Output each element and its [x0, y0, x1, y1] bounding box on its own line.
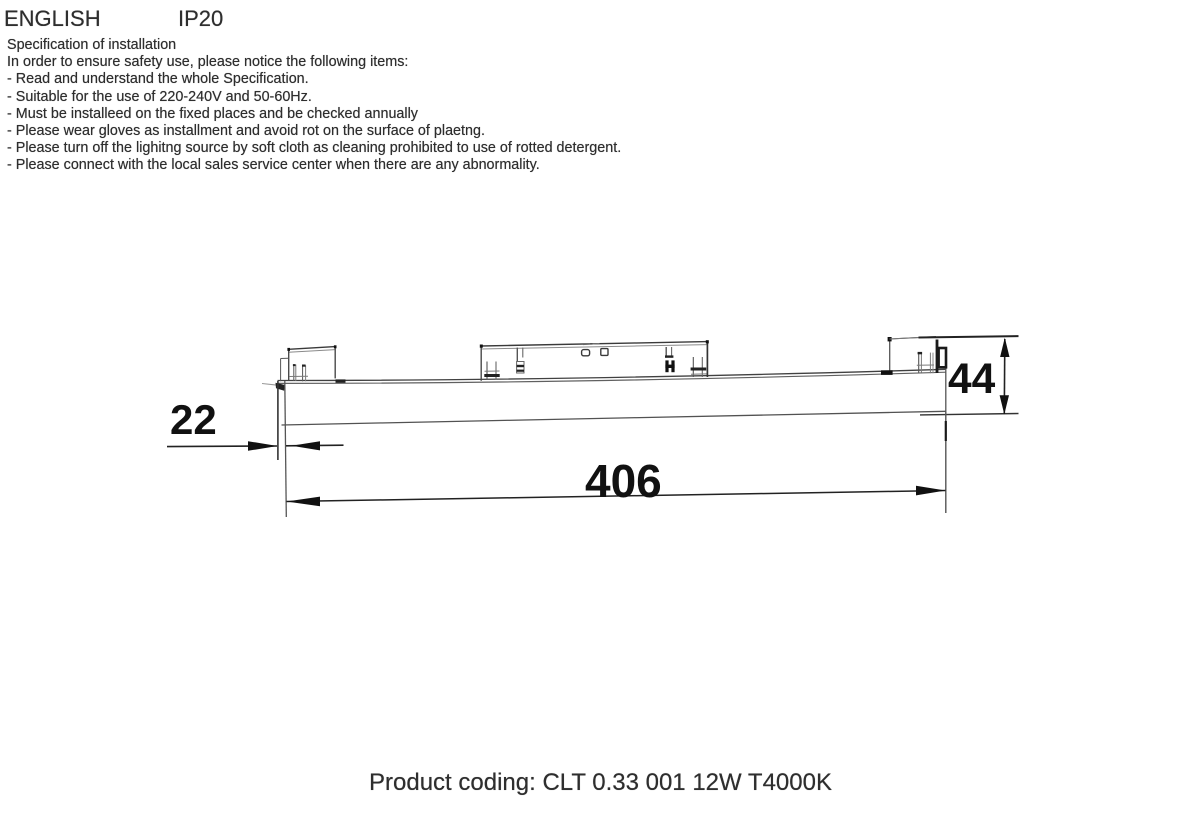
svg-text:22: 22	[170, 396, 217, 443]
svg-text:406: 406	[585, 455, 662, 507]
svg-text:44: 44	[948, 356, 996, 403]
